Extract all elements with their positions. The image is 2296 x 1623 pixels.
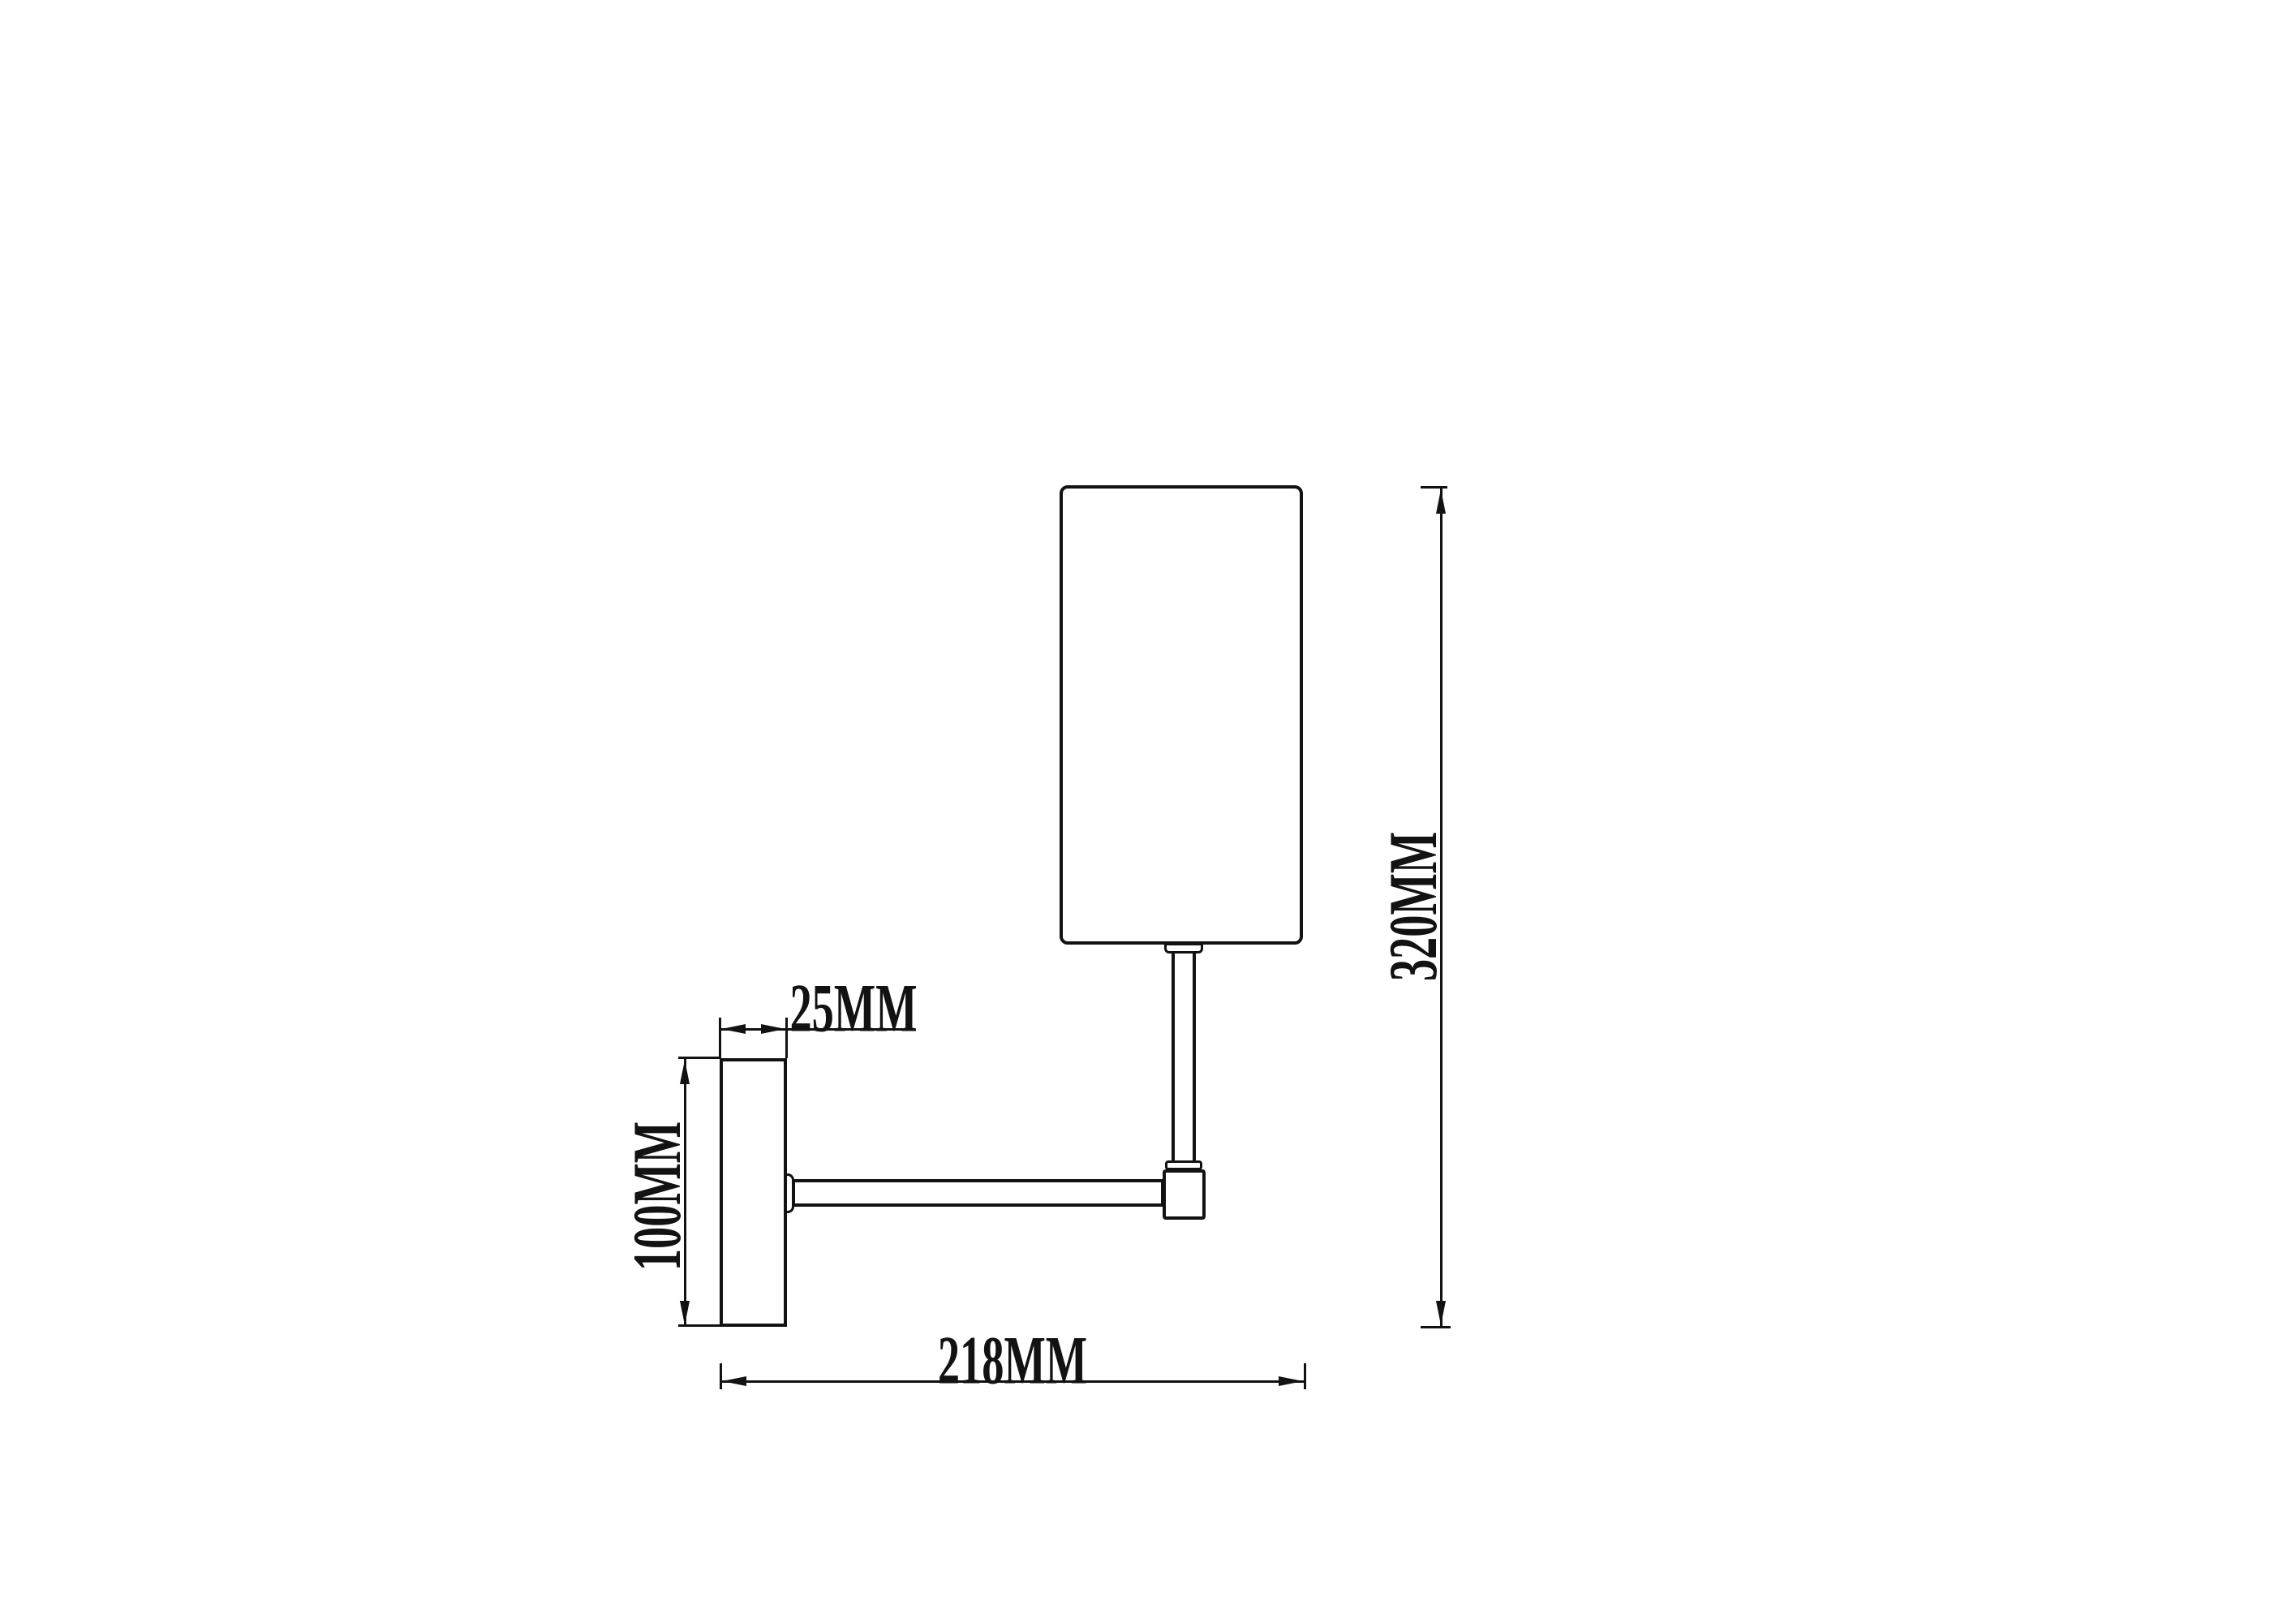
dim-25-extension-right bbox=[785, 1018, 788, 1058]
dim-320-arrow-down-icon bbox=[1436, 1301, 1446, 1325]
lampshade bbox=[1060, 485, 1303, 945]
mounting-arm bbox=[792, 1179, 1164, 1207]
dim-320-tick-bottom bbox=[1421, 1326, 1451, 1328]
drawing-canvas: 25MM 100MM 218MM 320MM bbox=[0, 0, 2296, 1623]
dim-25-arrow-left-icon bbox=[721, 1024, 746, 1034]
dim-218-arrow-left-icon bbox=[722, 1376, 746, 1386]
dim-218-label: 218MM bbox=[938, 1326, 1087, 1395]
dim-25-label: 25MM bbox=[789, 974, 917, 1043]
dim-218-extension-right bbox=[1304, 1363, 1306, 1389]
dim-25-arrow-right-icon bbox=[761, 1024, 785, 1034]
elbow-joint bbox=[1163, 1169, 1206, 1220]
dim-100-arrow-up-icon bbox=[680, 1060, 690, 1084]
lamp-stem bbox=[1172, 949, 1196, 1164]
dim-320-label: 320MM bbox=[1378, 832, 1447, 981]
dim-100-arrow-down-icon bbox=[680, 1301, 690, 1325]
dim-320-arrow-up-icon bbox=[1436, 489, 1446, 514]
dim-100-label: 100MM bbox=[622, 1121, 691, 1271]
dim-218-arrow-right-icon bbox=[1279, 1376, 1303, 1386]
dim-320-tick-top bbox=[1421, 486, 1447, 489]
wall-plate bbox=[720, 1058, 787, 1327]
